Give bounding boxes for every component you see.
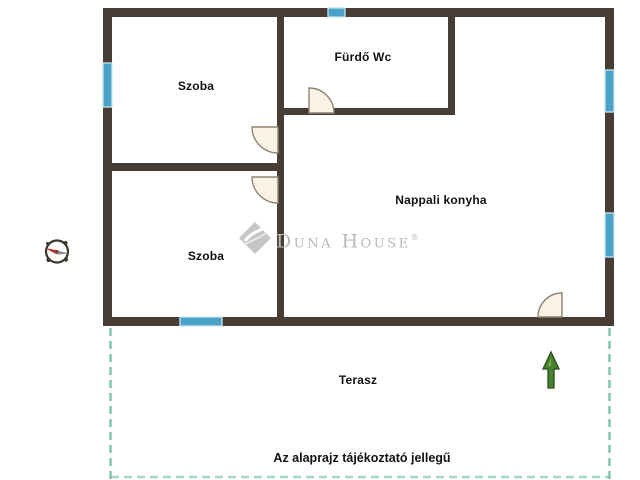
interior-walls: [112, 17, 455, 317]
wall-top: [103, 8, 614, 17]
door-arc-szoba-top: [252, 127, 278, 153]
room-label-szoba-bottom: Szoba: [188, 249, 224, 263]
north-arrow-icon: [543, 352, 559, 388]
watermark-registered-mark: ®: [411, 233, 419, 242]
window-left-wall: [103, 63, 112, 107]
room-label-terasz: Terasz: [339, 373, 377, 387]
wall-furdo-bottom: [277, 108, 455, 115]
door-arc-furdo: [309, 88, 334, 113]
room-label-nappali-konyha: Nappali konyha: [395, 193, 487, 207]
wall-furdo-right: [448, 17, 455, 115]
watermark: Duna House®: [276, 226, 419, 253]
room-label-szoba-top: Szoba: [178, 79, 214, 93]
compass-rose-icon: [45, 241, 69, 263]
duna-house-diamond-logo: [239, 222, 271, 254]
door-arc-entrance: [538, 293, 562, 317]
window-right-wall-upper: [605, 70, 614, 112]
door-arc-szoba-bottom: [252, 177, 278, 203]
window-right-wall-lower: [605, 213, 614, 257]
disclaimer-text: Az alaprajz tájékoztató jellegű: [273, 451, 450, 465]
wall-szoba-divider: [112, 163, 284, 171]
room-label-furdo-wc: Fürdő Wc: [335, 50, 392, 64]
watermark-brand-text: Duna House: [276, 230, 411, 252]
window-top-wall: [328, 8, 345, 17]
wall-right: [605, 8, 614, 326]
wall-left: [103, 8, 112, 326]
window-bottom-wall: [180, 317, 222, 326]
floor-plan: Szoba Fürdő Wc Nappali konyha Szoba Tera…: [0, 0, 640, 480]
